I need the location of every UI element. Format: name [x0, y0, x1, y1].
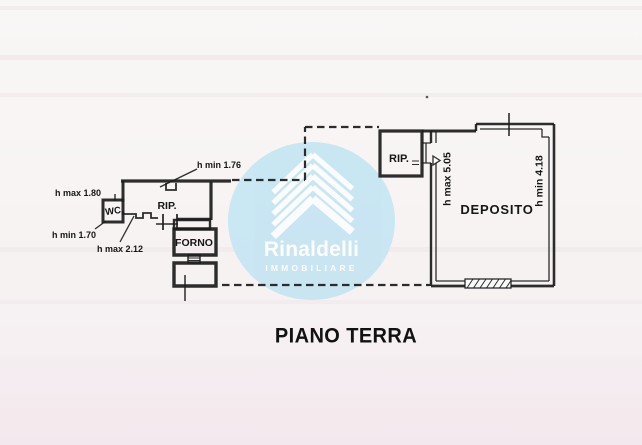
wall-inner — [480, 129, 549, 137]
room-label-rip-left: RIP. — [157, 200, 176, 212]
dim-label-h-max-1-80: h max 1.80 — [55, 188, 101, 198]
leader-line — [95, 221, 106, 229]
floor-plan-document: Rinaldelli IMMOBILIARE — [0, 0, 642, 445]
dim-label-h-min-4-18: h min 4.18 — [534, 155, 546, 207]
floor-plan-drawing: h max 1.80 h min 1.70 h max 2.12 h min 1… — [0, 0, 642, 445]
scan-speck — [426, 96, 429, 99]
flue-bars — [188, 258, 200, 261]
dim-label-h-min-1-70: h min 1.70 — [52, 230, 96, 240]
wall — [174, 263, 216, 286]
room-label-forno: FORNO — [175, 237, 213, 249]
dim-label-h-max-2-12: h max 2.12 — [97, 244, 143, 254]
door-symbol — [412, 161, 419, 165]
dim-label-h-min-1-76: h min 1.76 — [197, 160, 241, 170]
wall-step — [123, 213, 158, 218]
dim-label-h-max-5-05: h max 5.05 — [442, 152, 454, 206]
leader-line — [160, 169, 197, 187]
room-label-deposito: DEPOSITO — [460, 202, 533, 217]
dashed-boundary — [222, 127, 430, 285]
room-label-rip-right: RIP. — [389, 153, 409, 165]
room-label-wc: WC — [104, 205, 121, 218]
page-title: PIANO TERRA — [246, 324, 446, 348]
